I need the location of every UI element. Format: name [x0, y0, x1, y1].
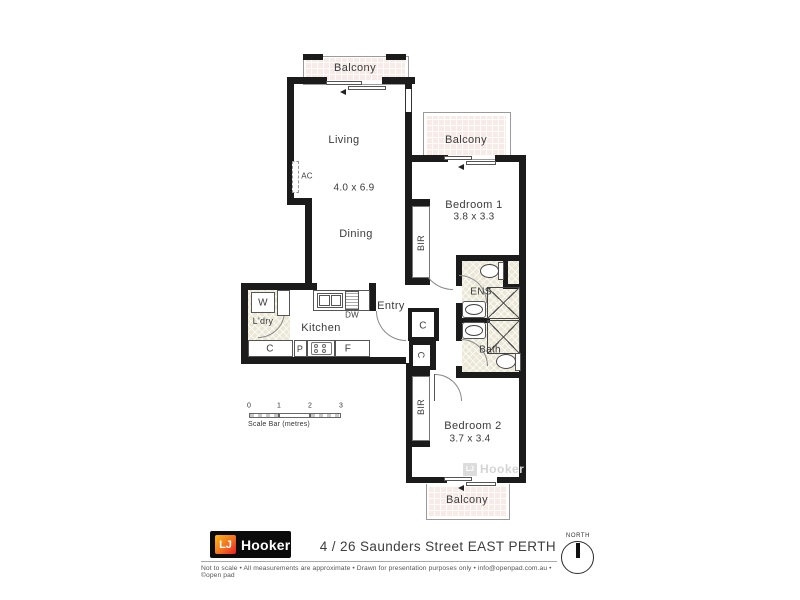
- watermark-name: Hooker: [480, 462, 524, 476]
- wall-segment: [241, 283, 248, 364]
- property-address: 4 / 26 Saunders Street EAST PERTH: [280, 539, 556, 554]
- footer-disclaimer: Not to scale • All measurements are appr…: [201, 565, 561, 579]
- toilet-icon: [496, 354, 516, 369]
- slider-arrow-icon: [458, 485, 464, 491]
- scalebar-tick: 3: [339, 403, 343, 410]
- burner-icon: [322, 344, 326, 348]
- wall-segment: [386, 54, 406, 60]
- laundry-trough-icon: [277, 290, 290, 316]
- wall-segment: [456, 255, 526, 261]
- north-needle-icon: [576, 543, 580, 558]
- ljhooker-lj-icon: LJ: [215, 535, 236, 554]
- fridge-label: F: [345, 344, 351, 355]
- wall-segment: [241, 283, 317, 290]
- wall-segment: [456, 372, 526, 378]
- wall-segment: [405, 111, 412, 285]
- bathroom-label: Bath: [479, 345, 501, 356]
- bedroom1-label: Bedroom 1: [445, 199, 502, 211]
- robe1-label: BIR: [416, 235, 426, 251]
- dishwasher-icon: [345, 291, 359, 310]
- plan-watermark: LJ Hooker: [463, 462, 524, 476]
- air-conditioner-icon: [292, 161, 299, 193]
- hall-cupboard-1-label: C: [419, 321, 427, 332]
- kitchen-sink-bowl-icon: [319, 295, 330, 306]
- sliding-door-panel: [444, 156, 472, 160]
- dishwasher-label: DW: [345, 311, 359, 320]
- scalebar-label: Scale Bar (metres): [248, 421, 310, 428]
- wall-segment: [241, 357, 406, 364]
- wall-segment: [412, 477, 447, 483]
- toilet-icon: [480, 264, 499, 278]
- burner-icon: [314, 349, 318, 353]
- slider-arrow-icon: [340, 89, 346, 95]
- scalebar-tick: 0: [247, 403, 251, 410]
- basin-icon: [465, 325, 483, 336]
- ensuite-label: ENS: [470, 287, 491, 298]
- floorplan-page: Balcony Living 4.0 x 6.9 Dining AC Balco…: [0, 0, 800, 600]
- sliding-door-panel: [444, 477, 472, 481]
- wall-segment: [303, 54, 323, 60]
- wall-segment: [369, 283, 376, 311]
- scalebar-segment: [249, 413, 279, 418]
- burner-icon: [322, 349, 326, 353]
- door-leaf: [434, 374, 435, 401]
- door-arc-bedroom2: [435, 374, 462, 401]
- hall-cupboard-2-label: C: [416, 352, 426, 359]
- scalebar-segment: [279, 413, 310, 418]
- wall-segment: [497, 477, 526, 483]
- wall-segment: [519, 155, 526, 483]
- north-label: NORTH: [566, 533, 590, 539]
- robe2-label: BIR: [416, 399, 426, 415]
- kitchen-label: Kitchen: [301, 322, 341, 334]
- wall-segment: [412, 155, 448, 162]
- wall-segment: [412, 199, 430, 206]
- shower-icon: [487, 287, 520, 319]
- watermark-lj-icon: LJ: [463, 463, 477, 476]
- bedroom2-dims-label: 3.7 x 3.4: [449, 434, 490, 445]
- scalebar-tick: 2: [308, 403, 312, 410]
- washer-label: W: [258, 298, 268, 309]
- balcony-bottom-label: Balcony: [446, 494, 488, 506]
- entry-label: Entry: [377, 300, 405, 312]
- sliding-door-panel: [466, 161, 496, 165]
- wall-segment: [287, 77, 327, 84]
- fridge-space: [335, 340, 370, 357]
- ac-label: AC: [301, 172, 313, 181]
- living-label: Living: [328, 134, 359, 146]
- bedroom1-dims-label: 3.8 x 3.3: [453, 212, 494, 223]
- balcony-top-label: Balcony: [334, 62, 376, 74]
- window: [405, 89, 412, 112]
- balcony-right-label: Balcony: [445, 134, 487, 146]
- sliding-door-panel: [326, 81, 362, 85]
- burner-icon: [314, 344, 318, 348]
- laundry-label: L'dry: [253, 316, 274, 326]
- pantry-label: P: [297, 344, 303, 354]
- dining-label: Dining: [339, 228, 373, 240]
- living-dims-label: 4.0 x 6.9: [333, 183, 374, 194]
- bedroom2-label: Bedroom 2: [444, 420, 501, 432]
- cupboard-label: C: [266, 344, 274, 355]
- ljhooker-logo: LJ Hooker: [210, 531, 291, 558]
- sliding-door-panel: [466, 482, 496, 486]
- door-arc-entry: [376, 311, 406, 341]
- slider-arrow-icon: [458, 164, 464, 170]
- wall-segment: [412, 441, 430, 447]
- scalebar-tick: 1: [277, 403, 281, 410]
- scalebar-segment: [310, 413, 341, 418]
- wall-segment: [305, 203, 312, 290]
- basin-icon: [465, 304, 483, 315]
- kitchen-sink-bowl-icon: [331, 295, 341, 306]
- wall-segment: [412, 278, 430, 285]
- footer-divider: [201, 561, 557, 562]
- sliding-door-panel: [348, 86, 386, 90]
